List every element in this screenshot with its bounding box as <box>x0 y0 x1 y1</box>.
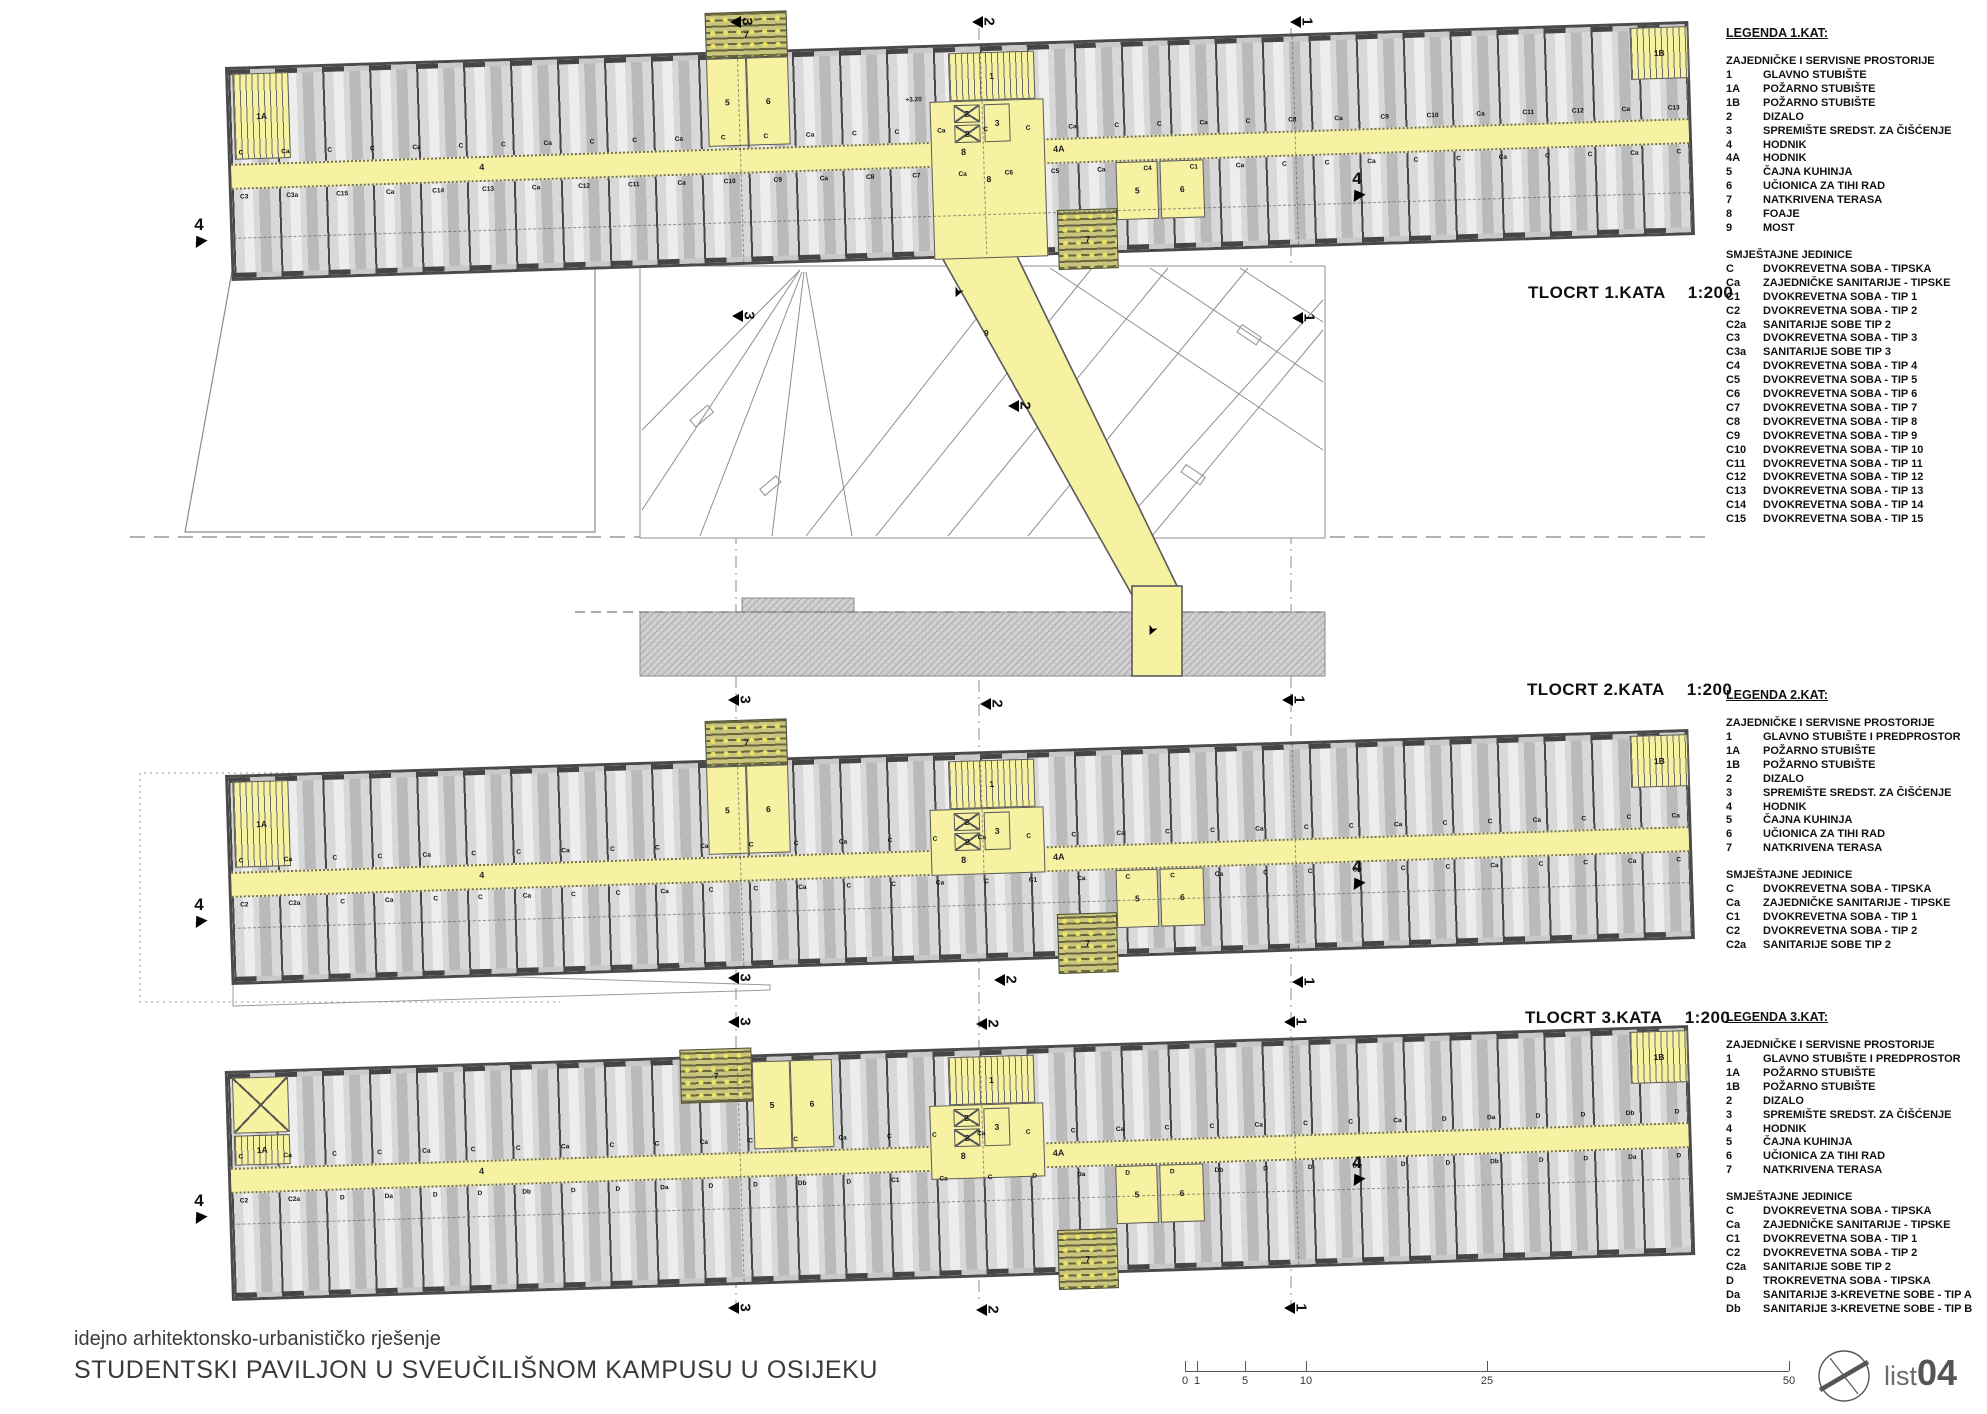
legend-text: DVOKREVETNA SOBA - TIP 11 <box>1763 458 1923 472</box>
legend-code: 1A <box>1726 745 1763 759</box>
legend-row: C6DVOKREVETNA SOBA - TIP 6 <box>1726 388 1987 402</box>
legend-row: C12DVOKREVETNA SOBA - TIP 12 <box>1726 471 1987 485</box>
legend-row: DbSANITARIJE 3-KREVETNE SOBE - TIP B <box>1726 1303 1987 1317</box>
legend-code: 2 <box>1726 111 1763 125</box>
legend-code: 8 <box>1726 208 1763 222</box>
legend-row: C4DVOKREVETNA SOBA - TIP 4 <box>1726 360 1987 374</box>
legend-text: SPREMIŠTE SREDST. ZA ČIŠĆENJE <box>1763 125 1951 139</box>
legend-code: 3 <box>1726 1109 1763 1123</box>
legend-code: 3 <box>1726 125 1763 139</box>
scale-tick <box>1185 1361 1186 1371</box>
legend-row: CaZAJEDNIČKE SANITARIJE - TIPSKE <box>1726 277 1987 291</box>
legend-code: C2 <box>1726 925 1763 939</box>
legend-section-heading: SMJEŠTAJNE JEDINICE <box>1726 249 1987 261</box>
project-subtitle: idejno arhitektonsko-urbanističko rješen… <box>74 1328 441 1351</box>
legend-code: C <box>1726 263 1763 277</box>
scale-tick <box>1197 1361 1198 1371</box>
legend-code: C1 <box>1726 291 1763 305</box>
legend-row: C7DVOKREVETNA SOBA - TIP 7 <box>1726 402 1987 416</box>
legend-row: 1GLAVNO STUBIŠTE I PREDPROSTOR <box>1726 1053 1987 1067</box>
legend-code: C2a <box>1726 319 1763 333</box>
legend-code: C11 <box>1726 458 1763 472</box>
legend-text: HODNIK <box>1763 801 1806 815</box>
legend-row: C5DVOKREVETNA SOBA - TIP 5 <box>1726 374 1987 388</box>
legend-section-heading: ZAJEDNIČKE I SERVISNE PROSTORIJE <box>1726 55 1987 67</box>
legend-text: ČAJNA KUHINJA <box>1763 1136 1852 1150</box>
legend-title: LEGENDA 1.KAT: <box>1726 26 1987 40</box>
legend-text: SANITARIJE SOBE TIP 2 <box>1763 939 1891 953</box>
legend-row: C15DVOKREVETNA SOBA - TIP 15 <box>1726 513 1987 527</box>
legend-row: 7NATKRIVENA TERASA <box>1726 194 1987 208</box>
legend-row: C13DVOKREVETNA SOBA - TIP 13 <box>1726 485 1987 499</box>
legend-text: NATKRIVENA TERASA <box>1763 842 1882 856</box>
scale-bar-line <box>1185 1371 1789 1372</box>
legend-row: C2aSANITARIJE SOBE TIP 2 <box>1726 939 1987 953</box>
plan-scale-text: 1:200 <box>1685 1008 1730 1027</box>
legend-title: LEGENDA 3.KAT: <box>1726 1010 1987 1024</box>
scale-tick <box>1789 1361 1790 1371</box>
scale-tick <box>1306 1361 1307 1371</box>
legend-text: DVOKREVETNA SOBA - TIP 2 <box>1763 925 1917 939</box>
legend-code: 4 <box>1726 801 1763 815</box>
legend-row: 4HODNIK <box>1726 801 1987 815</box>
scale-bar: 015102550 <box>1185 1340 1795 1390</box>
legend-text: DVOKREVETNA SOBA - TIP 1 <box>1763 291 1917 305</box>
legend-code: C8 <box>1726 416 1763 430</box>
legend-code: C13 <box>1726 485 1763 499</box>
project-title: STUDENTSKI PAVILJON U SVEUČILIŠNOM KAMPU… <box>74 1356 878 1385</box>
legend-code: 1A <box>1726 83 1763 97</box>
legend-code: C3a <box>1726 346 1763 360</box>
legend-text: DVOKREVETNA SOBA - TIP 4 <box>1763 360 1917 374</box>
legend-code: C3 <box>1726 332 1763 346</box>
existing-building <box>575 598 1325 676</box>
legend-row: C1DVOKREVETNA SOBA - TIP 1 <box>1726 291 1987 305</box>
legend-code: C12 <box>1726 471 1763 485</box>
legend-text: DIZALO <box>1763 773 1804 787</box>
legend-row: C3DVOKREVETNA SOBA - TIP 3 <box>1726 332 1987 346</box>
legend-code: 4A <box>1726 152 1763 166</box>
legend-text: POŽARNO STUBIŠTE <box>1763 1067 1875 1081</box>
legend-text: ČAJNA KUHINJA <box>1763 166 1852 180</box>
legend-text: DIZALO <box>1763 1095 1804 1109</box>
legend-code: 6 <box>1726 180 1763 194</box>
legend-title: LEGENDA 2.KAT: <box>1726 688 1987 702</box>
plan-title-2: TLOCRT 2.KATA1:200 <box>1527 680 1732 700</box>
legend-row: 1APOŽARNO STUBIŠTE <box>1726 745 1987 759</box>
plan-title-3: TLOCRT 3.KATA1:200 <box>1525 1008 1730 1028</box>
legend-floor-1: LEGENDA 1.KAT:ZAJEDNIČKE I SERVISNE PROS… <box>1726 26 1987 527</box>
legend-code: 1 <box>1726 69 1763 83</box>
legend-row: 4HODNIK <box>1726 1123 1987 1137</box>
legend-code: 2 <box>1726 1095 1763 1109</box>
legend-text: DIZALO <box>1763 111 1804 125</box>
legend-section-heading: ZAJEDNIČKE I SERVISNE PROSTORIJE <box>1726 1039 1987 1051</box>
legend-text: POŽARNO STUBIŠTE <box>1763 83 1875 97</box>
legend-text: FOAJE <box>1763 208 1800 222</box>
legend-code: 4 <box>1726 1123 1763 1137</box>
legend-text: DVOKREVETNA SOBA - TIP 8 <box>1763 416 1917 430</box>
legend-text: ZAJEDNIČKE SANITARIJE - TIPSKE <box>1763 277 1950 291</box>
legend-text: POŽARNO STUBIŠTE <box>1763 1081 1875 1095</box>
legend-code: 3 <box>1726 787 1763 801</box>
legend-text: POŽARNO STUBIŠTE <box>1763 759 1875 773</box>
legend-code: C7 <box>1726 402 1763 416</box>
legend-code: Db <box>1726 1303 1763 1317</box>
legend-code: C14 <box>1726 499 1763 513</box>
legend-row: 3SPREMIŠTE SREDST. ZA ČIŠĆENJE <box>1726 125 1987 139</box>
legend-text: GLAVNO STUBIŠTE I PREDPROSTOR <box>1763 1053 1961 1067</box>
legend-code: 7 <box>1726 842 1763 856</box>
scale-tick-label: 1 <box>1194 1375 1200 1387</box>
legend-code: C6 <box>1726 388 1763 402</box>
legend-code: C5 <box>1726 374 1763 388</box>
legend-row: C14DVOKREVETNA SOBA - TIP 14 <box>1726 499 1987 513</box>
legend-text: SANITARIJE SOBE TIP 2 <box>1763 319 1891 333</box>
legend-row: 1BPOŽARNO STUBIŠTE <box>1726 97 1987 111</box>
plan-title-1: TLOCRT 1.KATA1:200 <box>1528 283 1733 303</box>
legend-row: 1GLAVNO STUBIŠTE <box>1726 69 1987 83</box>
legend-code: 4 <box>1726 139 1763 153</box>
legend-text: HODNIK <box>1763 139 1806 153</box>
legend-row: 2DIZALO <box>1726 1095 1987 1109</box>
sheet-number-value: 04 <box>1917 1352 1957 1393</box>
legend-floor-2: LEGENDA 2.KAT:ZAJEDNIČKE I SERVISNE PROS… <box>1726 688 1987 953</box>
legend-text: DVOKREVETNA SOBA - TIP 15 <box>1763 513 1923 527</box>
legend-text: POŽARNO STUBIŠTE <box>1763 745 1875 759</box>
legend-text: SPREMIŠTE SREDST. ZA ČIŠĆENJE <box>1763 787 1951 801</box>
legend-code: D <box>1726 1275 1763 1289</box>
legend-code: 6 <box>1726 1150 1763 1164</box>
legend-code: C2a <box>1726 1261 1763 1275</box>
legend-row: C2DVOKREVETNA SOBA - TIP 2 <box>1726 925 1987 939</box>
legend-code: 7 <box>1726 1164 1763 1178</box>
legend-row: 5ČAJNA KUHINJA <box>1726 166 1987 180</box>
scale-tick <box>1487 1361 1488 1371</box>
legend-row: 1APOŽARNO STUBIŠTE <box>1726 83 1987 97</box>
legend-code: 1 <box>1726 731 1763 745</box>
legend-section-heading: SMJEŠTAJNE JEDINICE <box>1726 1191 1987 1203</box>
legend-text: ČAJNA KUHINJA <box>1763 814 1852 828</box>
legend-code: C1 <box>1726 911 1763 925</box>
legend-text: UČIONICA ZA TIHI RAD <box>1763 180 1885 194</box>
legend-row: 7NATKRIVENA TERASA <box>1726 1164 1987 1178</box>
legend-row: CDVOKREVETNA SOBA - TIPSKA <box>1726 1205 1987 1219</box>
legend-code: C1 <box>1726 1233 1763 1247</box>
legend-floor-3: LEGENDA 3.KAT:ZAJEDNIČKE I SERVISNE PROS… <box>1726 1010 1987 1316</box>
bridge-room-label: 9 <box>984 328 989 338</box>
legend-row: C2aSANITARIJE SOBE TIP 2 <box>1726 1261 1987 1275</box>
legend-code: C9 <box>1726 430 1763 444</box>
legend-row: 4HODNIK <box>1726 139 1987 153</box>
legend-row: C3aSANITARIJE SOBE TIP 3 <box>1726 346 1987 360</box>
legend-text: SANITARIJE SOBE TIP 3 <box>1763 346 1891 360</box>
legend-text: TROKREVETNA SOBA - TIPSKA <box>1763 1275 1931 1289</box>
legend-code: 5 <box>1726 1136 1763 1150</box>
legend-text: DVOKREVETNA SOBA - TIP 12 <box>1763 471 1923 485</box>
legend-row: DTROKREVETNA SOBA - TIPSKA <box>1726 1275 1987 1289</box>
legend-row: 6UČIONICA ZA TIHI RAD <box>1726 1150 1987 1164</box>
legend-text: DVOKREVETNA SOBA - TIPSKA <box>1763 1205 1931 1219</box>
legend-text: SANITARIJE 3-KREVETNE SOBE - TIP B <box>1763 1303 1972 1317</box>
legend-row: 2DIZALO <box>1726 773 1987 787</box>
legend-row: 3SPREMIŠTE SREDST. ZA ČIŠĆENJE <box>1726 1109 1987 1123</box>
legend-section-heading: ZAJEDNIČKE I SERVISNE PROSTORIJE <box>1726 717 1987 729</box>
legend-row: C2aSANITARIJE SOBE TIP 2 <box>1726 319 1987 333</box>
legend-code: C2 <box>1726 305 1763 319</box>
legend-text: UČIONICA ZA TIHI RAD <box>1763 828 1885 842</box>
legend-text: NATKRIVENA TERASA <box>1763 1164 1882 1178</box>
legend-text: DVOKREVETNA SOBA - TIP 1 <box>1763 911 1917 925</box>
legend-row: C1DVOKREVETNA SOBA - TIP 1 <box>1726 1233 1987 1247</box>
legend-text: DVOKREVETNA SOBA - TIP 13 <box>1763 485 1923 499</box>
scale-tick-label: 10 <box>1300 1375 1312 1387</box>
legend-code: C <box>1726 883 1763 897</box>
legend-code: 5 <box>1726 814 1763 828</box>
legend-row: CaZAJEDNIČKE SANITARIJE - TIPSKE <box>1726 1219 1987 1233</box>
legend-code: Da <box>1726 1289 1763 1303</box>
legend-code: 1B <box>1726 1081 1763 1095</box>
legend-row: C1DVOKREVETNA SOBA - TIP 1 <box>1726 911 1987 925</box>
legend-row: 1GLAVNO STUBIŠTE I PREDPROSTOR <box>1726 731 1987 745</box>
legend-text: UČIONICA ZA TIHI RAD <box>1763 1150 1885 1164</box>
scale-tick-label: 25 <box>1481 1375 1493 1387</box>
legend-text: POŽARNO STUBIŠTE <box>1763 97 1875 111</box>
legend-row: 7NATKRIVENA TERASA <box>1726 842 1987 856</box>
legend-text: GLAVNO STUBIŠTE <box>1763 69 1867 83</box>
site-boundary-lines <box>130 537 1706 1006</box>
legend-code: C2a <box>1726 939 1763 953</box>
sheet-number: list04 <box>1884 1352 1957 1394</box>
legend-row: 6UČIONICA ZA TIHI RAD <box>1726 180 1987 194</box>
legend-text: GLAVNO STUBIŠTE I PREDPROSTOR <box>1763 731 1961 745</box>
scale-tick <box>1245 1361 1246 1371</box>
sheet-number-word: list <box>1884 1361 1917 1391</box>
plan-title-text: TLOCRT 1.KATA <box>1528 283 1666 302</box>
legend-text: DVOKREVETNA SOBA - TIP 14 <box>1763 499 1923 513</box>
legend-row: 9MOST <box>1726 222 1987 236</box>
legend-text: DVOKREVETNA SOBA - TIP 2 <box>1763 305 1917 319</box>
legend-text: DVOKREVETNA SOBA - TIPSKA <box>1763 263 1931 277</box>
legend-text: DVOKREVETNA SOBA - TIP 10 <box>1763 444 1923 458</box>
legend-text: NATKRIVENA TERASA <box>1763 194 1882 208</box>
legend-row: CaZAJEDNIČKE SANITARIJE - TIPSKE <box>1726 897 1987 911</box>
legend-text: DVOKREVETNA SOBA - TIP 7 <box>1763 402 1917 416</box>
legend-code: Ca <box>1726 1219 1763 1233</box>
legend-row: 6UČIONICA ZA TIHI RAD <box>1726 828 1987 842</box>
legend-text: HODNIK <box>1763 1123 1806 1137</box>
legend-text: DVOKREVETNA SOBA - TIP 9 <box>1763 430 1917 444</box>
legend-code: Ca <box>1726 277 1763 291</box>
legend-text: ZAJEDNIČKE SANITARIJE - TIPSKE <box>1763 897 1950 911</box>
legend-text: DVOKREVETNA SOBA - TIP 5 <box>1763 374 1917 388</box>
legend-row: C9DVOKREVETNA SOBA - TIP 9 <box>1726 430 1987 444</box>
legend-code: 1 <box>1726 1053 1763 1067</box>
legend-row: C11DVOKREVETNA SOBA - TIP 11 <box>1726 458 1987 472</box>
legend-text: HODNIK <box>1763 152 1806 166</box>
legend-row: 5ČAJNA KUHINJA <box>1726 814 1987 828</box>
legend-code: 2 <box>1726 773 1763 787</box>
legend-row: C8DVOKREVETNA SOBA - TIP 8 <box>1726 416 1987 430</box>
legend-text: DVOKREVETNA SOBA - TIPSKA <box>1763 883 1931 897</box>
legend-row: CDVOKREVETNA SOBA - TIPSKA <box>1726 883 1987 897</box>
legend-text: SPREMIŠTE SREDST. ZA ČIŠĆENJE <box>1763 1109 1951 1123</box>
legend-row: 1APOŽARNO STUBIŠTE <box>1726 1067 1987 1081</box>
legend-text: SANITARIJE 3-KREVETNE SOBE - TIP A <box>1763 1289 1972 1303</box>
plan-title-text: TLOCRT 3.KATA <box>1525 1008 1663 1027</box>
legend-code: 1B <box>1726 759 1763 773</box>
legend-row: 1BPOŽARNO STUBIŠTE <box>1726 1081 1987 1095</box>
legend-code: C <box>1726 1205 1763 1219</box>
legend-row: C2DVOKREVETNA SOBA - TIP 2 <box>1726 305 1987 319</box>
plan-title-text: TLOCRT 2.KATA <box>1527 680 1665 699</box>
scale-tick-label: 50 <box>1783 1375 1795 1387</box>
legend-code: C10 <box>1726 444 1763 458</box>
legend-code: 5 <box>1726 166 1763 180</box>
legend-text: ZAJEDNIČKE SANITARIJE - TIPSKE <box>1763 1219 1950 1233</box>
legend-text: DVOKREVETNA SOBA - TIP 6 <box>1763 388 1917 402</box>
legend-row: 2DIZALO <box>1726 111 1987 125</box>
legend-section-heading: SMJEŠTAJNE JEDINICE <box>1726 869 1987 881</box>
legend-text: DVOKREVETNA SOBA - TIP 2 <box>1763 1247 1917 1261</box>
legend-code: 1A <box>1726 1067 1763 1081</box>
legend-code: 1B <box>1726 97 1763 111</box>
legend-code: Ca <box>1726 897 1763 911</box>
legend-code: 6 <box>1726 828 1763 842</box>
legend-row: C10DVOKREVETNA SOBA - TIP 10 <box>1726 444 1987 458</box>
legend-code: C15 <box>1726 513 1763 527</box>
legend-row: DaSANITARIJE 3-KREVETNE SOBE - TIP A <box>1726 1289 1987 1303</box>
legend-code: C2 <box>1726 1247 1763 1261</box>
scale-tick-label: 5 <box>1242 1375 1248 1387</box>
legend-row: CDVOKREVETNA SOBA - TIPSKA <box>1726 263 1987 277</box>
site-plan-graphics <box>0 0 1987 1404</box>
legend-row: 8FOAJE <box>1726 208 1987 222</box>
legend-code: C4 <box>1726 360 1763 374</box>
legend-row: 4AHODNIK <box>1726 152 1987 166</box>
legend-text: SANITARIJE SOBE TIP 2 <box>1763 1261 1891 1275</box>
plaza-outline <box>185 266 595 532</box>
legend-row: 5ČAJNA KUHINJA <box>1726 1136 1987 1150</box>
legend-row: 1BPOŽARNO STUBIŠTE <box>1726 759 1987 773</box>
legend-code: 7 <box>1726 194 1763 208</box>
scale-tick-label: 0 <box>1182 1375 1188 1387</box>
legend-row: 3SPREMIŠTE SREDST. ZA ČIŠĆENJE <box>1726 787 1987 801</box>
legend-text: DVOKREVETNA SOBA - TIP 1 <box>1763 1233 1917 1247</box>
legend-row: C2DVOKREVETNA SOBA - TIP 2 <box>1726 1247 1987 1261</box>
legend-text: MOST <box>1763 222 1795 236</box>
legend-text: DVOKREVETNA SOBA - TIP 3 <box>1763 332 1917 346</box>
legend-code: 9 <box>1726 222 1763 236</box>
